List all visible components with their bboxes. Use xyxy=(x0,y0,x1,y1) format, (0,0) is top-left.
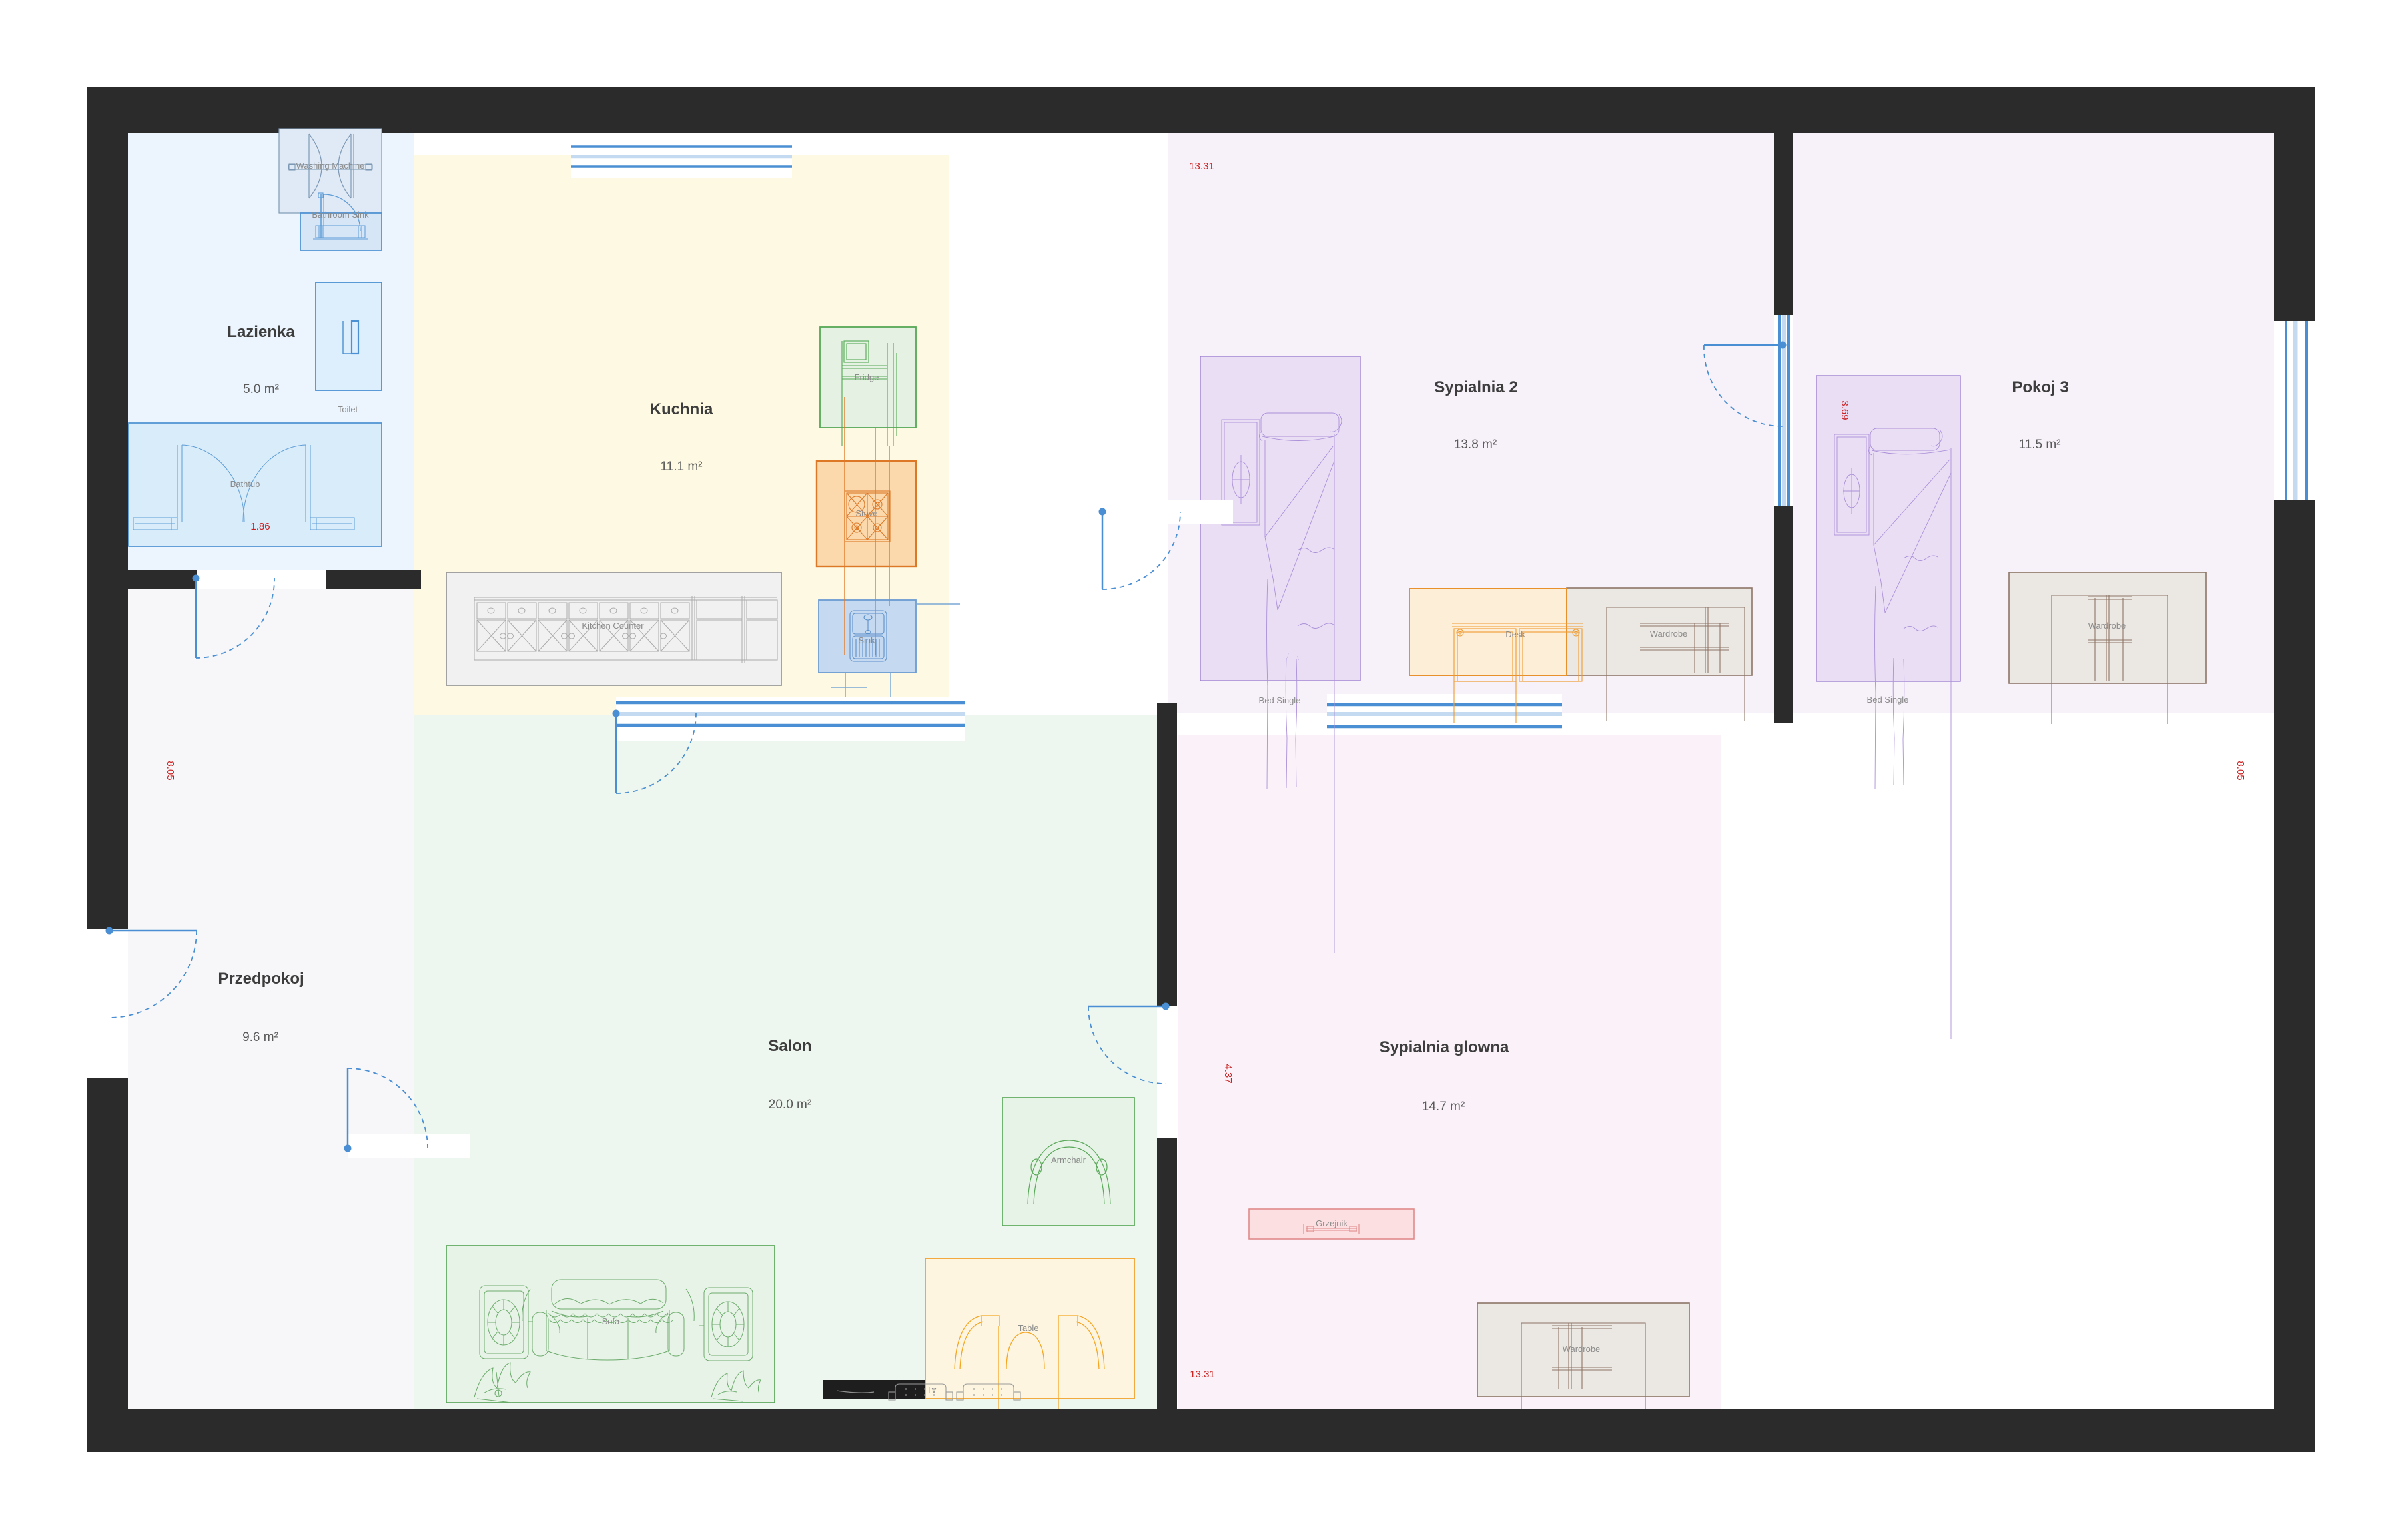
svg-text:13.8 m²: 13.8 m² xyxy=(1454,438,1497,452)
svg-text:14.7 m²: 14.7 m² xyxy=(1422,1100,1465,1114)
svg-text:Wardrobe: Wardrobe xyxy=(2088,621,2126,631)
svg-text:Sypialnia glowna: Sypialnia glowna xyxy=(1380,1038,1509,1056)
svg-text:Toilet: Toilet xyxy=(338,404,358,414)
svg-text:Sypialnia 2: Sypialnia 2 xyxy=(1434,378,1517,396)
svg-text:8.05: 8.05 xyxy=(2235,761,2246,780)
svg-text:Lazienka: Lazienka xyxy=(227,323,295,341)
svg-text:9.6 m²: 9.6 m² xyxy=(242,1030,278,1044)
svg-text:Bathtub: Bathtub xyxy=(230,479,260,489)
svg-text:13.31: 13.31 xyxy=(1189,161,1214,172)
svg-text:20.0 m²: 20.0 m² xyxy=(769,1098,811,1112)
svg-text:Sofa: Sofa xyxy=(602,1316,621,1326)
svg-text:Fridge: Fridge xyxy=(855,372,879,382)
svg-text:Table: Table xyxy=(1018,1323,1038,1333)
svg-text:Sink: Sink xyxy=(858,635,875,645)
svg-text:11.5 m²: 11.5 m² xyxy=(2018,438,2060,452)
svg-text:3.69: 3.69 xyxy=(1839,400,1850,420)
svg-text:Grzejnik: Grzejnik xyxy=(1316,1218,1348,1228)
svg-text:13.31: 13.31 xyxy=(1190,1369,1215,1380)
svg-text:Kitchen Counter: Kitchen Counter xyxy=(582,621,644,631)
svg-text:Bed Single: Bed Single xyxy=(1259,695,1301,705)
svg-text:8.05: 8.05 xyxy=(165,761,176,780)
svg-text:Wardrobe: Wardrobe xyxy=(1563,1344,1601,1354)
svg-text:Wardrobe: Wardrobe xyxy=(1650,629,1688,639)
svg-text:Salon: Salon xyxy=(768,1037,811,1055)
svg-text:1.86: 1.86 xyxy=(250,521,270,532)
svg-text:Armchair: Armchair xyxy=(1051,1155,1086,1165)
svg-text:Bed Single: Bed Single xyxy=(1867,695,1909,705)
svg-text:Washing Machine: Washing Machine xyxy=(296,161,365,171)
svg-text:11.1 m²: 11.1 m² xyxy=(660,460,702,474)
svg-text:Pokoj 3: Pokoj 3 xyxy=(2012,378,2068,396)
svg-text:Przedpokoj: Przedpokoj xyxy=(218,970,304,988)
svg-text:5.0 m²: 5.0 m² xyxy=(243,382,279,396)
svg-text:Bathroom Sink: Bathroom Sink xyxy=(312,210,369,220)
svg-text:4.37: 4.37 xyxy=(1222,1064,1234,1083)
svg-text:Tv: Tv xyxy=(927,1385,937,1395)
svg-text:Desk: Desk xyxy=(1505,629,1525,639)
svg-text:Kuchnia: Kuchnia xyxy=(650,400,713,418)
svg-text:Stove: Stove xyxy=(855,508,877,518)
